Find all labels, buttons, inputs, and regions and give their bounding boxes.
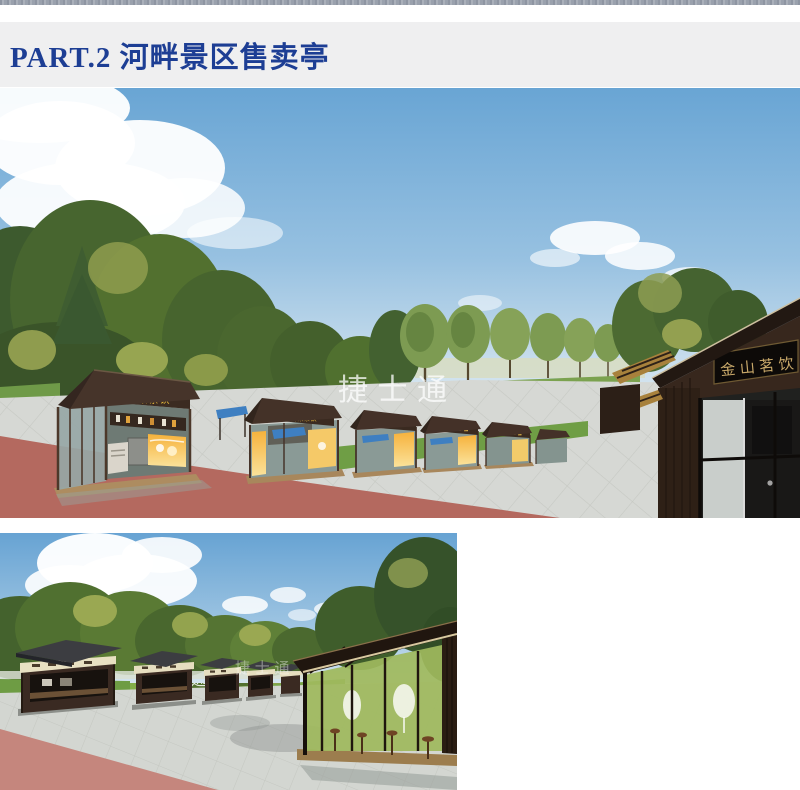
menu-poster	[148, 434, 186, 467]
main-perspective-render: 鲜果茶饮 鲜果茶饮	[0, 88, 800, 518]
kiosk-6	[536, 429, 570, 464]
watermark-text: 捷 士 通	[338, 373, 447, 408]
watermark-text: 捷 士 通	[235, 659, 290, 677]
teahouse-storefront-glass	[700, 388, 800, 518]
kiosk-counter	[108, 442, 128, 474]
section-header: PART.2 河畔景区售卖亭	[0, 22, 800, 87]
distant-stall	[600, 384, 640, 434]
top-image-sliver	[0, 0, 800, 5]
page-title: PART.2 河畔景区售卖亭	[10, 34, 330, 76]
kiosk-3	[350, 410, 422, 478]
kiosk-1: 鲜果茶饮	[54, 370, 212, 506]
pavilion-slat-wall	[442, 630, 457, 754]
kiosk-2: 鲜果茶饮	[244, 398, 345, 484]
kiosk-equipment	[128, 438, 150, 465]
bottom-image-row: 捷 士 通	[0, 533, 800, 790]
street-kiosk-1	[16, 640, 122, 716]
teahouse-slat-wall	[658, 378, 700, 518]
kiosk-4	[420, 416, 482, 473]
street-view-render: 捷 士 通	[0, 533, 457, 790]
kiosk-5	[482, 422, 534, 469]
page: PART.2 河畔景区售卖亭	[0, 0, 800, 790]
